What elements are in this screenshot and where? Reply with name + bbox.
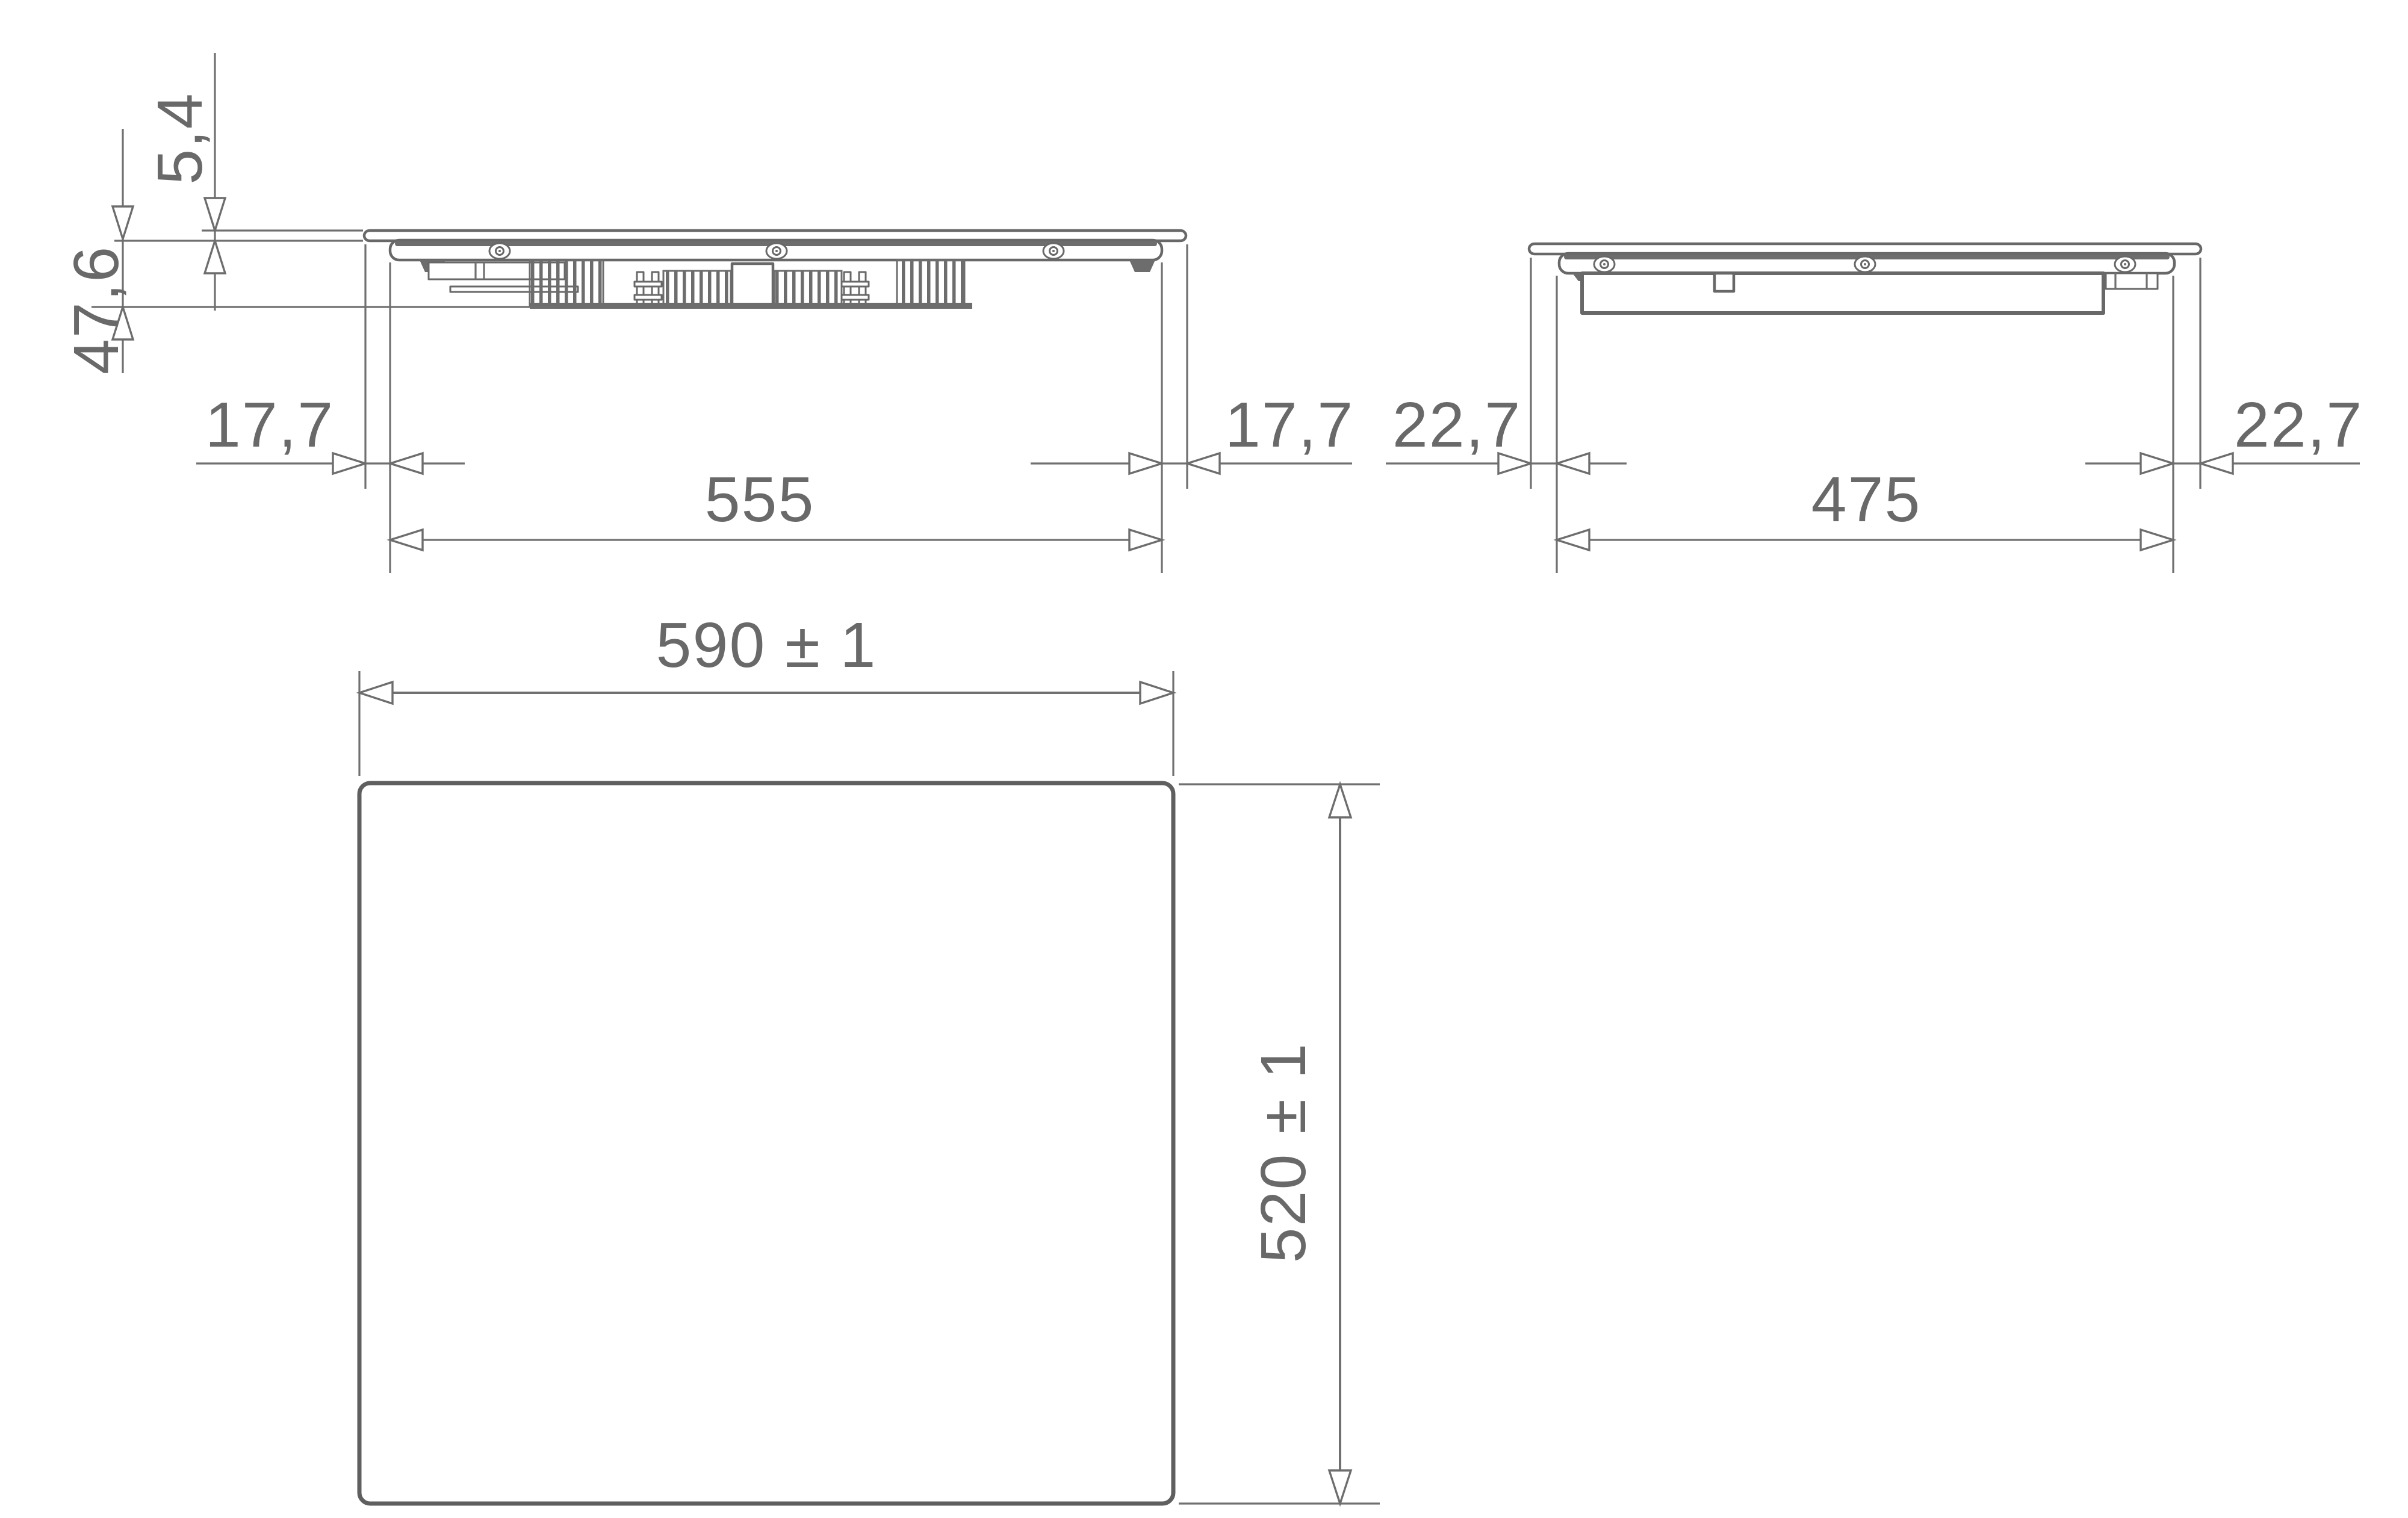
front-post — [652, 272, 659, 306]
front-screw-right — [1043, 243, 1064, 259]
dim-label-body-width: 555 — [705, 464, 815, 535]
front-post — [859, 272, 866, 306]
front-screw-left — [489, 243, 510, 259]
front-view-dimensions: 5,4 47,6 17,7 555 17,7 — [61, 53, 1354, 573]
side-screw-center — [1855, 256, 1875, 272]
side-tab — [1714, 273, 1734, 291]
side-screw-left — [1594, 256, 1615, 272]
side-housing — [1582, 273, 2103, 313]
front-heatsink-center-left — [663, 271, 731, 306]
front-heatsink-left — [530, 260, 603, 306]
front-bottom-tray — [530, 303, 972, 309]
dim-label-cutout-width: 590 ± 1 — [656, 610, 877, 681]
dim-label-side-left-overhang: 22,7 — [1392, 389, 1521, 460]
dim-label-glass-thickness: 5,4 — [144, 92, 216, 184]
front-post — [637, 272, 644, 306]
front-post — [844, 272, 851, 306]
dim-label-side-right-overhang: 22,7 — [2234, 389, 2363, 460]
front-screw-center — [766, 243, 787, 259]
front-heatsink-right — [897, 260, 964, 306]
cutout-view: 590 ± 1 520 ± 1 — [359, 610, 1380, 1504]
dim-label-body-height: 47,6 — [61, 246, 132, 374]
front-view — [364, 231, 1186, 309]
dim-label-right-overhang: 17,7 — [1225, 389, 1354, 460]
front-foot-right — [1129, 260, 1155, 272]
dim-label-cutout-depth: 520 ± 1 — [1248, 1042, 1319, 1263]
front-fan-box — [732, 264, 773, 306]
dim-label-left-overhang: 17,7 — [205, 389, 334, 460]
front-heatsink-center-right — [774, 271, 842, 306]
technical-drawing-page: 5,4 47,6 17,7 555 17,7 — [0, 0, 2408, 1518]
side-view — [1529, 244, 2201, 313]
cutout-rectangle — [359, 783, 1173, 1504]
side-bracket — [2106, 273, 2158, 289]
dimension-drawing-canvas: 5,4 47,6 17,7 555 17,7 — [0, 0, 2408, 1518]
side-screw-right — [2115, 256, 2135, 272]
dim-label-body-depth: 475 — [1811, 464, 1922, 535]
